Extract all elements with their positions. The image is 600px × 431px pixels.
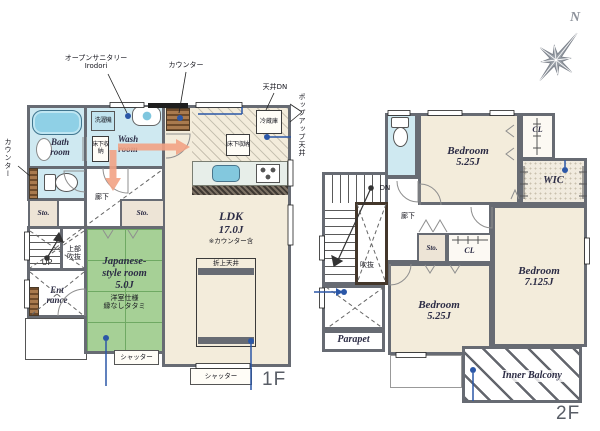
counter-left-annotation: カウンター — [3, 138, 13, 206]
counter-top-annotation: カウンター — [163, 60, 209, 71]
counter-left-wood — [29, 168, 38, 199]
fridge-box — [256, 110, 282, 134]
roof-outline — [390, 355, 462, 388]
washing-machine-box — [91, 111, 115, 131]
kitchen-sink — [212, 165, 240, 182]
toilet-bowl-2f-icon — [393, 127, 408, 147]
room-upper-void — [60, 226, 87, 271]
stairs-2f-void-box — [355, 202, 388, 285]
room-wic — [520, 158, 587, 205]
shutter-box-bottom — [190, 368, 252, 385]
stairs-2f-top-treads — [325, 175, 385, 203]
kitchen-counter-front — [192, 186, 288, 195]
coffered-ceiling-band-bottom — [198, 337, 254, 344]
entrance-bench-wood — [29, 287, 39, 316]
bathtub-icon — [32, 110, 82, 135]
compass-north-label: N — [570, 10, 580, 26]
room-stairs-1f — [27, 226, 63, 271]
floor-label-2f: 2F — [556, 403, 580, 425]
toilet-bowl-1f-icon — [55, 173, 78, 192]
underfloor-storage-kitchen — [226, 134, 250, 156]
kitchen-stove — [256, 164, 280, 183]
coffered-ceiling-band-top — [198, 268, 254, 275]
room-sto-2f — [417, 233, 447, 263]
kitchen-counter-wood — [166, 108, 190, 131]
washbasin-icon — [132, 106, 161, 126]
room-void-2f — [322, 285, 385, 330]
room-bedroom-top — [418, 113, 520, 205]
underfloor-storage-wash — [92, 136, 109, 162]
room-bedroom-bottom — [388, 263, 492, 355]
floor-label-1f: 1F — [262, 369, 286, 391]
room-japanese — [84, 226, 165, 354]
open-sanitary-annotation: オープンサニタリーIrodori — [52, 51, 140, 73]
porch-tiles — [25, 318, 87, 360]
floor-plan-canvas: 冷蔵庫 床下収納 折上天井 洗濯機 床下収納 シャッター シャッター Bathr… — [0, 0, 600, 431]
bath-stool-icon — [36, 138, 52, 161]
room-cl-top — [520, 113, 555, 160]
room-sto-left — [28, 199, 59, 228]
compass-rose-icon — [516, 6, 600, 98]
room-sto-mid — [120, 199, 165, 228]
popup-ceiling-annotation: ポップアップ天井 — [297, 93, 307, 197]
room-bedroom-right — [492, 205, 587, 347]
room-inner-balcony — [462, 346, 582, 403]
ceiling-dn-annotation: 天井DN — [256, 82, 294, 93]
room-parapet — [322, 330, 385, 352]
compass: N — [516, 6, 600, 98]
shutter-box-left — [114, 350, 159, 365]
room-cl-mid — [447, 233, 492, 263]
stairs-2f-left-treads — [325, 203, 355, 282]
